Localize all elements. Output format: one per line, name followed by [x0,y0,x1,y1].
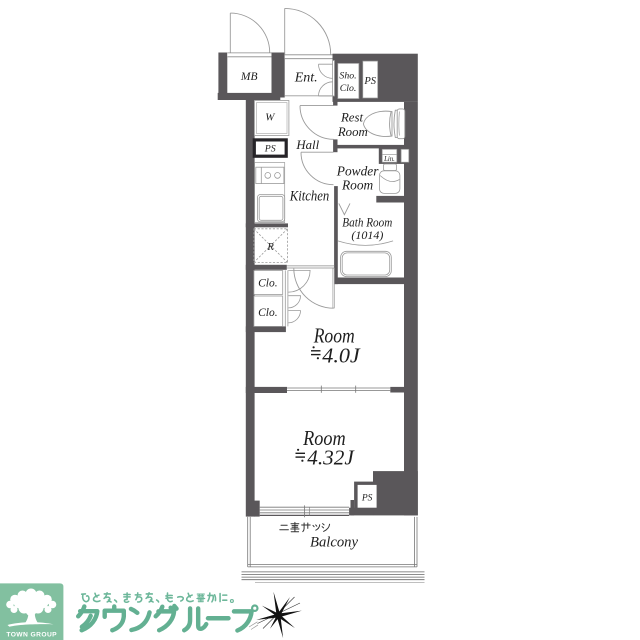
svg-text:Clo.: Clo. [340,83,357,94]
svg-text:Kitchen: Kitchen [289,189,329,205]
svg-text:Ent.: Ent. [294,70,318,85]
svg-text:4.32J: 4.32J [307,446,355,470]
svg-text:Clo.: Clo. [258,277,278,289]
svg-text:PS: PS [363,76,376,87]
svg-text:W: W [265,112,275,124]
svg-text:PS: PS [361,493,373,503]
svg-text:4.0J: 4.0J [322,343,361,367]
svg-text:R: R [266,242,274,253]
svg-text:Lin.: Lin. [383,156,395,163]
svg-text:Room: Room [341,177,374,192]
svg-text:(1014): (1014) [351,228,383,242]
svg-text:Rest: Rest [340,111,363,125]
svg-text:PS: PS [264,144,276,155]
svg-text:Room: Room [337,125,368,139]
svg-text:TOWN GROUP: TOWN GROUP [6,631,57,638]
svg-text:Balcony: Balcony [310,534,359,550]
svg-text:MB: MB [240,71,258,83]
svg-text:Sho.: Sho. [339,71,356,82]
svg-text:Clo.: Clo. [258,307,278,319]
svg-text:Hall: Hall [295,138,319,152]
